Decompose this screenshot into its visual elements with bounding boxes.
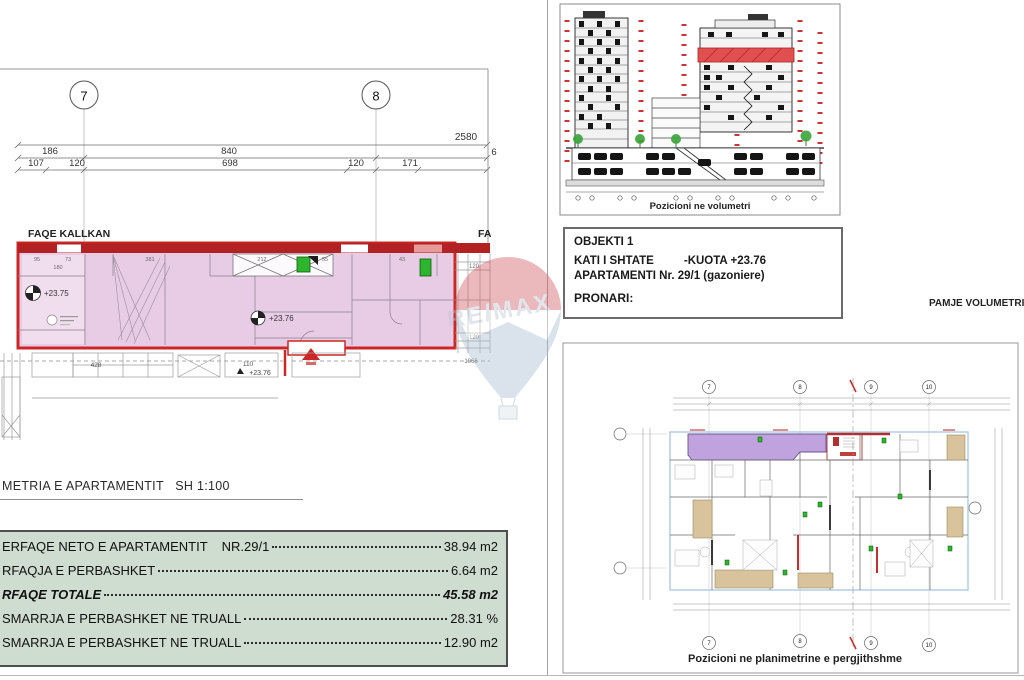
scale-rule xyxy=(0,499,303,500)
fa-cut-label: FA xyxy=(478,228,492,240)
dimension-labels: 2580 186 840 6 107 120 698 120 171 xyxy=(28,132,497,169)
grid-bubble-7-label: 7 xyxy=(80,89,87,104)
dim-6: 6 xyxy=(491,147,496,158)
row-value: 6.64 m2 xyxy=(451,563,498,578)
building-elevation-drawing: Pozicioni ne volumetri xyxy=(558,2,844,218)
level-pointer-icon xyxy=(237,368,244,374)
row-value: 28.31 % xyxy=(450,611,498,626)
level-marker-b: +23.76 xyxy=(269,314,294,323)
dot-leader xyxy=(158,570,448,572)
svg-text:180: 180 xyxy=(53,265,62,271)
row-value: 45.58 m2 xyxy=(443,587,498,602)
row-label: RFAQE TOTALE xyxy=(2,587,101,602)
svg-text:10: 10 xyxy=(926,643,933,649)
svg-text:381: 381 xyxy=(145,257,154,263)
owner-label: PRONARI: xyxy=(574,291,832,305)
remax-balloon-icon xyxy=(455,257,561,419)
page-bottom-rule xyxy=(0,675,1024,676)
svg-text:95: 95 xyxy=(34,257,40,263)
level-marker-c: +23.76 xyxy=(249,370,271,377)
dot-leader xyxy=(244,618,447,620)
door-marker-icon xyxy=(297,257,310,272)
row-value: 38.94 m2 xyxy=(444,539,498,554)
svg-text:43: 43 xyxy=(399,257,405,263)
entry xyxy=(285,341,345,376)
grid-bubble-8-label: 8 xyxy=(372,89,379,104)
svg-text:73: 73 xyxy=(65,257,71,263)
table-row-total: RFAQE TOTALE 45.58 m2 xyxy=(2,587,498,611)
table-row: RFAQJA E PERBASHKET 6.64 m2 xyxy=(2,563,498,587)
below-dims: 428 110 +23.76 xyxy=(91,361,271,377)
faqe-kallkan-label: FAQE KALLKAN xyxy=(28,228,110,240)
left-tower xyxy=(575,11,628,148)
site-plan-caption: Pozicioni ne planimetrine e pergjithshme xyxy=(688,653,902,665)
table-row: SMARRJA E PERBASHKET NE TRUALL 28.31 % xyxy=(2,611,498,635)
dim-698: 698 xyxy=(222,158,238,169)
row-value: 12.90 m2 xyxy=(444,635,498,650)
plan-scale-label: METRIA E APARTAMENTIT SH 1:100 xyxy=(2,479,230,493)
dimension-lines xyxy=(15,142,490,173)
dot-leader xyxy=(104,594,440,596)
row-label: RFAQJA E PERBASHKET xyxy=(2,563,155,578)
door-marker-icon xyxy=(420,259,431,276)
svg-text:428: 428 xyxy=(91,362,102,369)
dim-total: 2580 xyxy=(455,132,478,143)
object-info-box: OBJEKTI 1 KATI I SHTATE -KUOTA +23.76 AP… xyxy=(563,227,843,319)
right-tower xyxy=(698,14,794,132)
dim-840: 840 xyxy=(221,146,237,157)
dim-107: 107 xyxy=(28,158,44,169)
dim-171: 171 xyxy=(402,158,418,169)
table-row: SMARRJA E PERBASHKET NE TRUALL 12.90 m2 xyxy=(2,635,498,659)
row-label: SMARRJA E PERBASHKET NE TRUALL xyxy=(2,611,241,626)
dim-120b: 120 xyxy=(348,158,364,169)
dot-leader xyxy=(244,642,440,644)
svg-text:110: 110 xyxy=(243,361,254,368)
top-wall-band xyxy=(18,243,490,253)
floor-label: KATI I SHTATE xyxy=(574,255,654,267)
dot-leader xyxy=(272,546,440,548)
row-label: ERFAQE NETO E APARTAMENTIT xyxy=(2,539,208,554)
dim-120a: 120 xyxy=(69,158,85,169)
elevation-quota: -KUOTA +23.76 xyxy=(684,255,766,267)
table-row: ERFAQE NETO E APARTAMENTIT NR.29/1 38.94… xyxy=(2,539,498,563)
area-summary-table: ERFAQE NETO E APARTAMENTIT NR.29/1 38.94… xyxy=(0,530,508,667)
pamje-volumetri-label: PAMJE VOLUMETRI xyxy=(929,298,1024,309)
svg-text:212: 212 xyxy=(257,257,266,263)
row-ref: NR.29/1 xyxy=(222,539,270,554)
dim-186: 186 xyxy=(42,146,58,157)
svg-text:10: 10 xyxy=(926,385,933,391)
elevation-caption: Pozicioni ne volumetri xyxy=(650,201,751,212)
row-label: SMARRJA E PERBASHKET NE TRUALL xyxy=(2,635,241,650)
object-title: OBJEKTI 1 xyxy=(574,236,832,248)
site-plan-drawing: 7 8 9 10 7 8 9 10 xyxy=(555,340,1024,676)
level-marker-a: +23.75 xyxy=(44,289,69,298)
svg-text:55: 55 xyxy=(322,257,328,263)
remax-watermark: RE/MAX xyxy=(435,248,575,423)
apartment-number: APARTAMENTI Nr. 29/1 (gazoniere) xyxy=(574,270,832,282)
